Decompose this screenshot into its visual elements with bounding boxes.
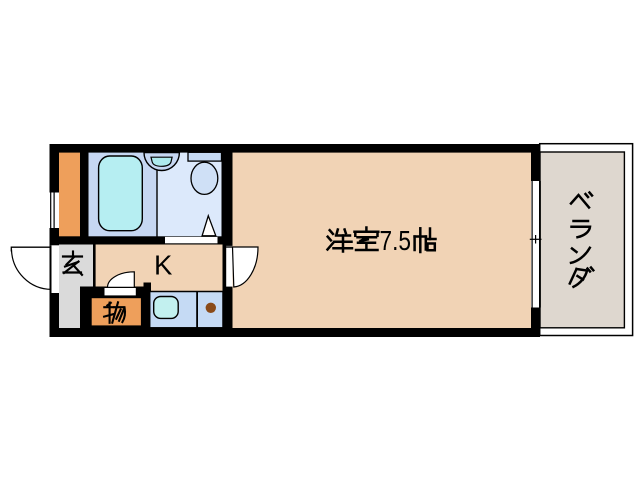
svg-text:K: K (154, 250, 173, 281)
svg-text:7.5: 7.5 (380, 225, 412, 256)
